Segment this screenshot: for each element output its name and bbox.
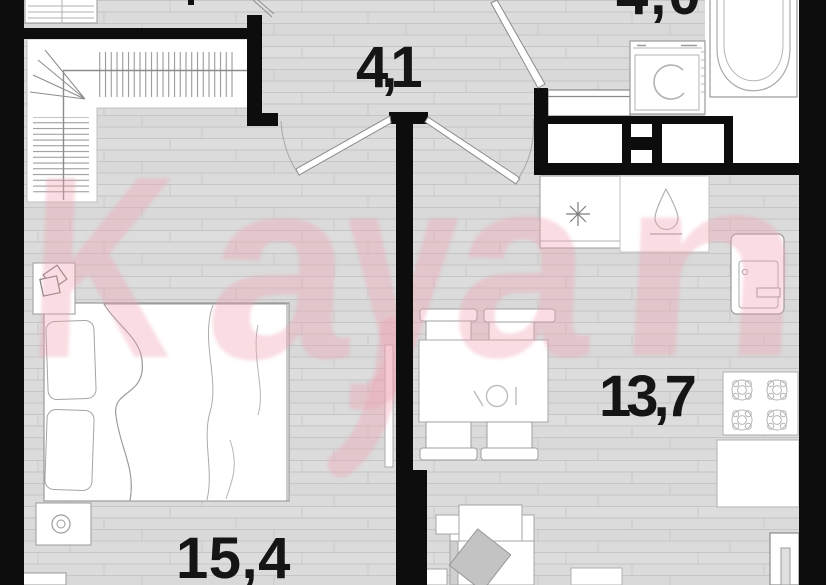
svg-text:4,0: 4,0 bbox=[616, 0, 703, 27]
svg-text:a: a bbox=[200, 123, 361, 414]
svg-text:4,1: 4,1 bbox=[356, 35, 421, 100]
svg-text:K: K bbox=[24, 123, 180, 413]
svg-text:13,7: 13,7 bbox=[599, 364, 695, 429]
svg-text:15,4: 15,4 bbox=[176, 526, 291, 585]
